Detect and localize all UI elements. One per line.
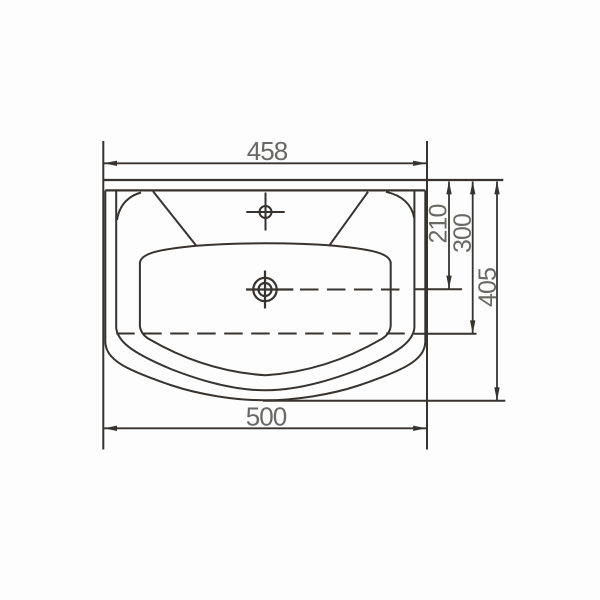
svg-text:300: 300	[449, 214, 477, 253]
svg-text:500: 500	[246, 401, 287, 431]
svg-text:458: 458	[247, 136, 288, 166]
svg-text:405: 405	[474, 268, 502, 307]
